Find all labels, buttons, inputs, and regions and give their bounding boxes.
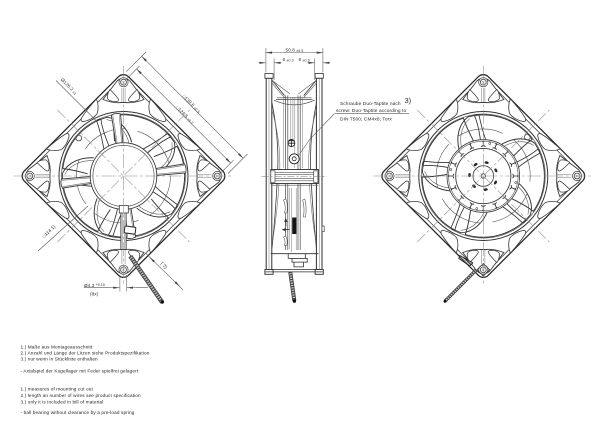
svg-text:- Axialspiel der Kugellager mi: - Axialspiel der Kugellager mit Feder sp…	[21, 369, 139, 374]
svg-text:1.) Maße aus Montageausschnitt: 1.) Maße aus Montageausschnitt	[21, 345, 93, 350]
svg-text:screw: Duo-Taptite according t: screw: Duo-Taptite according to	[336, 108, 407, 114]
svg-text:2.) Anzahl und Länge der Litze: 2.) Anzahl und Länge der Litzen siehe Pr…	[21, 351, 150, 356]
svg-text:50.8 ±0.5: 50.8 ±0.5	[286, 48, 304, 53]
svg-text:3): 3)	[405, 96, 412, 105]
svg-text:8 ±0.3: 8 ±0.3	[299, 57, 310, 62]
svg-text:DIN 7500; CM4x8; Torx: DIN 7500; CM4x8; Torx	[340, 117, 392, 123]
svg-text:1.) measures of mounting cut o: 1.) measures of mounting cut out	[21, 387, 94, 392]
svg-text:Schraube Duo-Taptite nach: Schraube Duo-Taptite nach	[340, 101, 401, 107]
svg-text:- ball bearing without clearan: - ball bearing without clearance by a pr…	[21, 410, 135, 415]
svg-text:(8x): (8x)	[90, 292, 99, 297]
svg-text:2.) length an number of wires: 2.) length an number of wires see produc…	[21, 393, 141, 398]
svg-text:3.) nur wenn in Stückliste ent: 3.) nur wenn in Stückliste enthalten	[21, 357, 99, 362]
svg-text:6 ±0.3: 6 ±0.3	[283, 57, 294, 62]
svg-text:3.) only it is included in bil: 3.) only it is included in bill of mater…	[21, 399, 104, 404]
